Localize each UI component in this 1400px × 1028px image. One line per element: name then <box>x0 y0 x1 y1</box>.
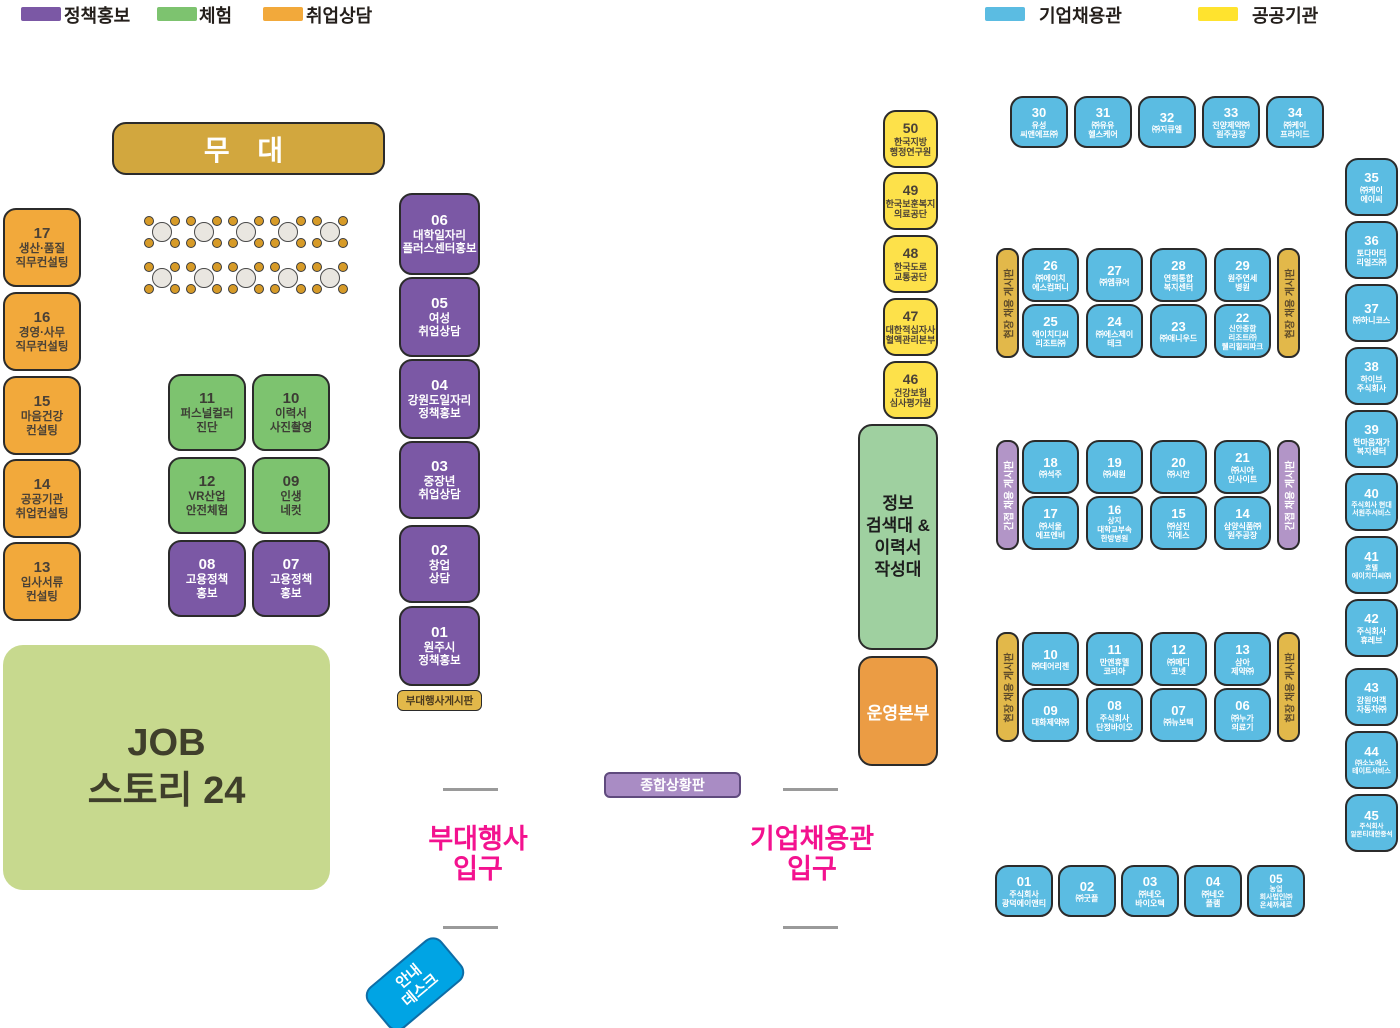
booth-17-consult[interactable]: 17생산·품질 직무컨설팅 <box>3 208 81 287</box>
booth-15-company[interactable]: 15㈜삼진 지에스 <box>1150 496 1207 550</box>
booth-13-company[interactable]: 13삼아 제약㈜ <box>1214 632 1271 686</box>
entrance-company-hall: 기업채용관 입구 <box>732 824 892 884</box>
entrance-gap-line <box>783 926 838 929</box>
booth-49-public[interactable]: 49한국보훈복지 의료공단 <box>883 172 938 230</box>
indirect-hiring-board-left: 간접 채용 게시판 <box>996 440 1019 550</box>
stage: 무 대 <box>112 122 385 175</box>
booth-26-company[interactable]: 26㈜에이치 에스컴퍼니 <box>1022 248 1079 302</box>
round-table <box>228 214 264 250</box>
booth-01-subevent[interactable]: 01원주시 정책홍보 <box>399 606 480 686</box>
booth-38-company[interactable]: 38하이브 주식회사 <box>1345 347 1398 405</box>
booth-06-subevent[interactable]: 06대학일자리 플러스센터홍보 <box>399 193 480 275</box>
booth-19-company[interactable]: 19㈜세원 <box>1086 440 1143 494</box>
booth-45-company[interactable]: 45주식회사 알몬티대한중석 <box>1345 794 1398 852</box>
legend-label-company: 기업채용관 <box>1039 2 1122 28</box>
booth-05-company[interactable]: 05농업 회사법인㈜ 온세까세로 <box>1247 865 1305 917</box>
booth-11-company[interactable]: 11만앤휴멜 코리아 <box>1086 632 1143 686</box>
booth-33-company[interactable]: 33진양제약㈜ 원주공장 <box>1202 96 1260 148</box>
operations-hq: 운영본부 <box>858 656 938 766</box>
legend-label-counsel: 취업상담 <box>306 2 372 28</box>
booth-04-subevent[interactable]: 04강원도일자리 정책홍보 <box>399 359 480 439</box>
booth-11-experience[interactable]: 11퍼스널컬러 진단 <box>168 374 246 451</box>
round-table <box>144 214 180 250</box>
info-desk: 안내 데스크 <box>361 932 469 1028</box>
round-table <box>186 214 222 250</box>
onsite-hiring-board-right-2: 현장 채용 게시판 <box>1277 632 1300 742</box>
booth-17-company[interactable]: 17㈜서울 에프엔비 <box>1022 496 1079 550</box>
booth-48-public[interactable]: 48한국도로 교통공단 <box>883 235 938 293</box>
booth-22-company[interactable]: 22신안종합 리조트㈜ 웰리힐리파크 <box>1214 304 1271 358</box>
booth-23-company[interactable]: 23㈜애니우드 <box>1150 304 1207 358</box>
booth-10-company[interactable]: 10㈜데어리젠 <box>1022 632 1079 686</box>
booth-34-company[interactable]: 34㈜케이 프라이드 <box>1266 96 1324 148</box>
legend-swatch-company <box>985 7 1025 21</box>
booth-24-company[interactable]: 24㈜에스제이 테크 <box>1086 304 1143 358</box>
booth-47-public[interactable]: 47대한적십자사 혈액관리본부 <box>883 298 938 356</box>
booth-06-company[interactable]: 06㈜누가 의료기 <box>1214 688 1271 742</box>
booth-15-consult[interactable]: 15마음건강 컨설팅 <box>3 376 81 455</box>
legend-swatch-public <box>1198 7 1238 21</box>
job-story-zone: JOB 스토리 24 <box>3 645 330 890</box>
booth-50-public[interactable]: 50한국지방 행정연구원 <box>883 110 938 168</box>
legend-swatch-counsel <box>263 7 303 21</box>
onsite-hiring-board-right-1: 현장 채용 게시판 <box>1277 248 1300 358</box>
booth-04-company[interactable]: 04㈜네오 플램 <box>1184 865 1242 917</box>
booth-14-consult[interactable]: 14공공기관 취업컨설팅 <box>3 459 81 538</box>
booth-07-company[interactable]: 07㈜뉴보텍 <box>1150 688 1207 742</box>
booth-40-company[interactable]: 40주식회사 현대 서원주서비스 <box>1345 473 1398 531</box>
legend-label-experience: 체험 <box>199 2 232 28</box>
booth-08-company[interactable]: 08주식회사 단정바이오 <box>1086 688 1143 742</box>
booth-09-experience[interactable]: 09인생 네컷 <box>252 457 330 534</box>
round-table <box>228 260 264 296</box>
booth-03-subevent[interactable]: 03중장년 취업상담 <box>399 441 480 519</box>
entrance-sub-events: 부대행사 입구 <box>398 824 558 884</box>
booth-05-subevent[interactable]: 05여성 취업상담 <box>399 277 480 357</box>
booth-32-company[interactable]: 32㈜지큐엘 <box>1138 96 1196 148</box>
round-table <box>312 214 348 250</box>
entrance-gap-line <box>443 788 498 791</box>
booth-09-company[interactable]: 09대화제약㈜ <box>1022 688 1079 742</box>
booth-30-company[interactable]: 30유성 씨앤에프㈜ <box>1010 96 1068 148</box>
booth-16-consult[interactable]: 16경영·사무 직무컨설팅 <box>3 292 81 371</box>
round-table <box>312 260 348 296</box>
booth-14-company[interactable]: 14삼양식품㈜ 원주공장 <box>1214 496 1271 550</box>
booth-21-company[interactable]: 21㈜시야 인사이트 <box>1214 440 1271 494</box>
booth-13-consult[interactable]: 13입사서류 컨설팅 <box>3 542 81 621</box>
booth-02-subevent[interactable]: 02창업 상담 <box>399 525 480 603</box>
legend-label-public: 공공기관 <box>1252 2 1318 28</box>
entrance-gap-line <box>443 926 498 929</box>
booth-37-company[interactable]: 37㈜하니코스 <box>1345 284 1398 342</box>
booth-27-company[interactable]: 27㈜엠큐어 <box>1086 248 1143 302</box>
stage-label: 무 대 <box>204 129 293 169</box>
booth-46-public[interactable]: 46건강보험 심사평가원 <box>883 361 938 419</box>
booth-25-company[interactable]: 25에이치디씨 리조트㈜ <box>1022 304 1079 358</box>
booth-31-company[interactable]: 31㈜유유 헬스케어 <box>1074 96 1132 148</box>
booth-36-company[interactable]: 36토다머티 리얼즈㈜ <box>1345 221 1398 279</box>
round-table <box>186 260 222 296</box>
legend-swatch-policy <box>21 7 61 21</box>
onsite-hiring-board-left-2: 현장 채용 게시판 <box>996 632 1019 742</box>
booth-39-company[interactable]: 39한마음재가 복지센터 <box>1345 410 1398 468</box>
booth-43-company[interactable]: 43강원여객 자동차㈜ <box>1345 668 1398 726</box>
booth-28-company[interactable]: 28연희통합 복지센터 <box>1150 248 1207 302</box>
booth-44-company[interactable]: 44㈜소노에스 테이트서비스 <box>1345 731 1398 789</box>
booth-20-company[interactable]: 20㈜시안 <box>1150 440 1207 494</box>
booth-01-company[interactable]: 01주식회사 광덕에이앤티 <box>995 865 1053 917</box>
onsite-hiring-board-left-1: 현장 채용 게시판 <box>996 248 1019 358</box>
info-search-zone: 정보 검색대 & 이력서 작성대 <box>858 424 938 650</box>
booth-03-company[interactable]: 03㈜네오 바이오텍 <box>1121 865 1179 917</box>
booth-16-company[interactable]: 16상지 대학교부속 한방병원 <box>1086 496 1143 550</box>
legend-swatch-experience <box>157 7 197 21</box>
round-table <box>270 260 306 296</box>
booth-35-company[interactable]: 35㈜케이 에이씨 <box>1345 158 1398 216</box>
round-table <box>144 260 180 296</box>
entrance-gap-line <box>783 788 838 791</box>
booth-41-company[interactable]: 41호텔 에이치디씨㈜ <box>1345 536 1398 594</box>
indirect-hiring-board-right: 간접 채용 게시판 <box>1277 440 1300 550</box>
booth-07-policy[interactable]: 07고용정책 홍보 <box>252 540 330 617</box>
booth-18-company[interactable]: 18㈜석주 <box>1022 440 1079 494</box>
booth-02-company[interactable]: 02㈜굿플 <box>1058 865 1116 917</box>
booth-12-company[interactable]: 12㈜메디 코넷 <box>1150 632 1207 686</box>
legend-label-policy: 정책홍보 <box>64 2 130 28</box>
status-board: 종합상황판 <box>604 772 741 798</box>
booth-42-company[interactable]: 42주식회사 휴레브 <box>1345 599 1398 657</box>
booth-29-company[interactable]: 29원주연세 병원 <box>1214 248 1271 302</box>
round-table <box>270 214 306 250</box>
booth-12-experience[interactable]: 12VR산업 안전체험 <box>168 457 246 534</box>
sub-event-board-label: 부대행사게시판 <box>397 690 482 711</box>
booth-10-experience[interactable]: 10이력서 사진촬영 <box>252 374 330 451</box>
venue-floor-map: 정책홍보 체험 취업상담 기업채용관 공공기관 무 대 17생산·품질 직무컨설… <box>0 0 1400 1028</box>
booth-08-policy[interactable]: 08고용정책 홍보 <box>168 540 246 617</box>
